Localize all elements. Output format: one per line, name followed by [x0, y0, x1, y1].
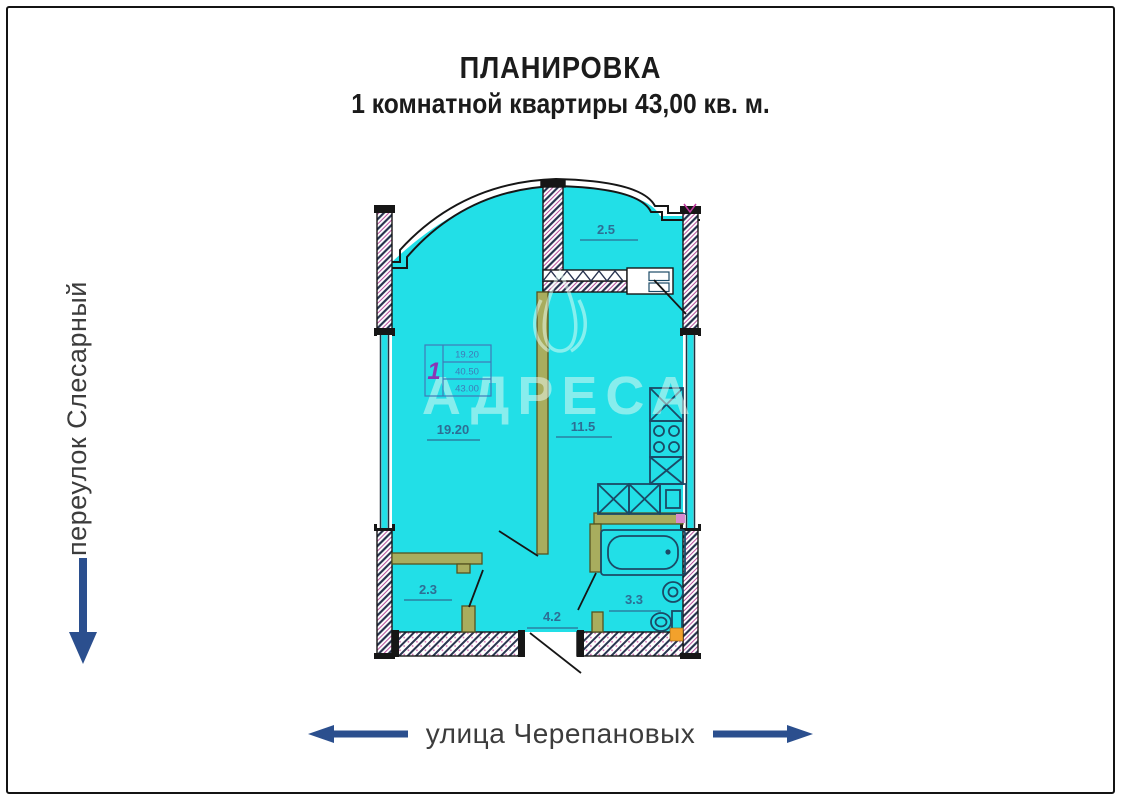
page-title: ПЛАНИРОВКА 1 комнатной квартиры 43,00 кв… — [0, 50, 1121, 120]
stamp-total-area: 43.00 — [455, 384, 479, 395]
bottom-street: улица Черепановых — [0, 708, 1121, 760]
title-line2: 1 комнатной квартиры 43,00 кв. м. — [67, 88, 1053, 120]
entrance-door — [530, 633, 581, 673]
orange-marker — [670, 628, 683, 641]
vent-block — [627, 268, 673, 294]
right-arrow-icon — [713, 723, 813, 745]
stamp-area-no-balcony: 40.50 — [455, 367, 479, 378]
stamp-room-count: 1 — [427, 358, 440, 385]
pink-marker — [676, 514, 685, 523]
down-arrow-icon — [62, 556, 104, 668]
stamp-living-area: 19.20 — [455, 350, 479, 361]
area-label-closet: 2.3 — [419, 582, 437, 597]
area-label-bath: 3.3 — [625, 592, 643, 607]
left-arrow-icon — [308, 723, 408, 745]
left-street-label: переулок Слесарный — [62, 286, 93, 556]
area-label-hall: 4.2 — [543, 609, 561, 624]
window-left — [377, 335, 392, 528]
title-line1: ПЛАНИРОВКА — [67, 50, 1053, 86]
bottom-street-label: улица Черепановых — [426, 718, 695, 750]
area-label-living: 19.20 — [437, 422, 470, 437]
floor-plan: АДРЕСА 1 19.20 40.50 43.00 2.5 19.20 11.… — [355, 165, 715, 685]
area-label-balcony: 2.5 — [597, 222, 615, 237]
floorplan-page: ПЛАНИРОВКА 1 комнатной квартиры 43,00 кв… — [0, 0, 1121, 800]
area-label-kitchen: 11.5 — [571, 419, 596, 434]
